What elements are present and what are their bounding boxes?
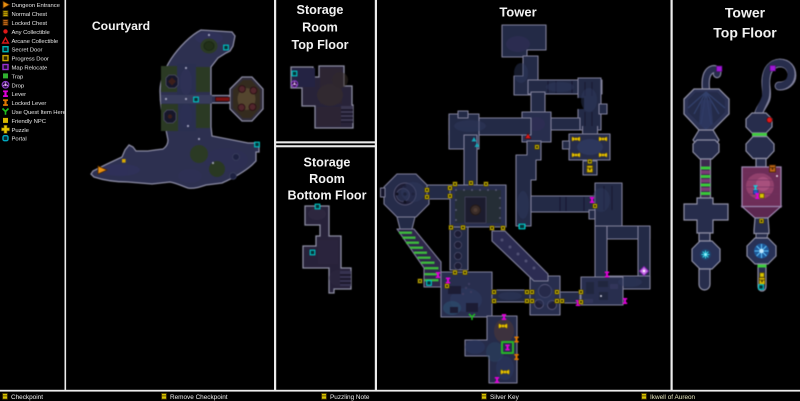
svg-text:Normal Chest: Normal Chest: [12, 12, 48, 18]
svg-text:Top Floor: Top Floor: [713, 25, 777, 41]
svg-text:Tower: Tower: [499, 5, 536, 20]
svg-text:Checkpoint: Checkpoint: [11, 394, 43, 401]
svg-text:Lever: Lever: [12, 92, 27, 98]
svg-text:Storage: Storage: [304, 156, 351, 170]
svg-text:Ikwell of Aureon: Ikwell of Aureon: [650, 394, 696, 401]
svg-text:Puzzle: Puzzle: [12, 128, 30, 134]
svg-text:Arcane Collectible: Arcane Collectible: [12, 39, 59, 45]
svg-text:Use Quest Item Here: Use Quest Item Here: [12, 110, 67, 116]
svg-text:Puzzling Note: Puzzling Note: [330, 394, 370, 401]
svg-text:Tower: Tower: [725, 5, 766, 21]
svg-text:Locked Lever: Locked Lever: [12, 101, 47, 107]
svg-text:Room: Room: [302, 21, 338, 35]
svg-text:Map Relocate: Map Relocate: [12, 66, 49, 72]
svg-text:Locked Chest: Locked Chest: [12, 21, 48, 27]
svg-text:Silver Key: Silver Key: [490, 394, 520, 401]
svg-text:Remove Checkpoint: Remove Checkpoint: [170, 394, 228, 401]
svg-text:Portal: Portal: [12, 137, 27, 143]
svg-text:Top Floor: Top Floor: [291, 38, 348, 52]
svg-text:Trap: Trap: [12, 74, 24, 80]
svg-text:Dungeon Entrance: Dungeon Entrance: [12, 3, 61, 9]
svg-text:Progress Door: Progress Door: [12, 57, 49, 63]
svg-text:Bottom Floor: Bottom Floor: [287, 189, 366, 203]
svg-text:Any Collectible: Any Collectible: [12, 30, 51, 36]
svg-text:Storage: Storage: [297, 3, 344, 17]
svg-text:Friendly NPC: Friendly NPC: [12, 119, 47, 125]
svg-text:Secret Door: Secret Door: [12, 48, 43, 54]
svg-text:Drop: Drop: [12, 83, 25, 89]
svg-text:Room: Room: [309, 172, 345, 186]
svg-text:Courtyard: Courtyard: [92, 19, 150, 33]
